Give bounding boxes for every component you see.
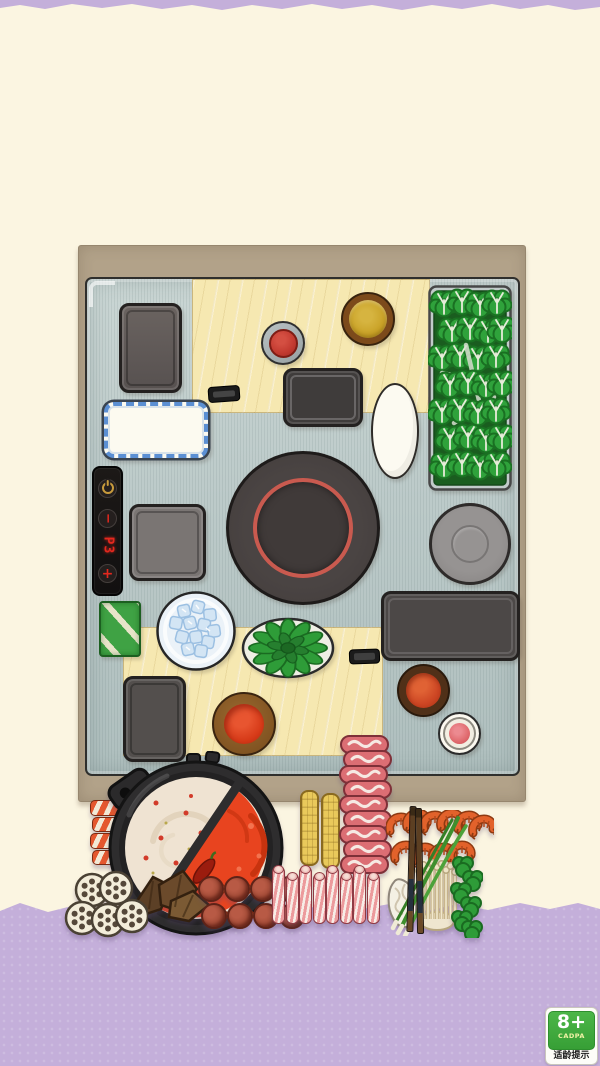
tray-top-center[interactable] bbox=[283, 368, 363, 427]
small-handle[interactable] bbox=[349, 648, 381, 664]
sliced-meat-rolls[interactable] bbox=[272, 866, 396, 932]
burner-control-panel: − P3 + bbox=[92, 466, 123, 596]
ice-plate[interactable] bbox=[155, 590, 237, 672]
power-level-display: P3 bbox=[100, 537, 115, 555]
age-rating-square: 8+ CADPA bbox=[548, 1011, 595, 1050]
age-rating-badge: 8+ CADPA 适龄提示 bbox=[545, 1007, 598, 1065]
large-dark-tray[interactable] bbox=[381, 591, 520, 661]
cilantro-plate[interactable] bbox=[240, 612, 336, 680]
broccoli[interactable] bbox=[447, 854, 483, 938]
burner-heat-ring bbox=[253, 478, 353, 578]
blue-rim-plate[interactable] bbox=[104, 402, 208, 458]
lotus-root-slices[interactable] bbox=[64, 870, 148, 942]
red-dip-bowl-center[interactable] bbox=[212, 692, 276, 756]
age-rating-org: CADPA bbox=[549, 1033, 594, 1040]
marbled-beef-stack[interactable] bbox=[337, 734, 393, 876]
age-rating-label: 适龄提示 bbox=[546, 1050, 597, 1063]
lettuce-box-graphic bbox=[428, 285, 512, 491]
mustard-sauce-bowl[interactable] bbox=[341, 292, 395, 346]
broccoli-graphic bbox=[447, 854, 483, 938]
plus-icon: + bbox=[102, 567, 114, 581]
red-sauce-cup[interactable] bbox=[261, 321, 305, 365]
whetstone[interactable] bbox=[207, 385, 240, 403]
lettuce-box[interactable] bbox=[428, 285, 512, 491]
wall-edge-strip bbox=[0, 0, 600, 12]
round-gray-plate[interactable] bbox=[429, 503, 511, 585]
wrapped-green-pack[interactable] bbox=[99, 601, 141, 657]
beef-stack-graphic bbox=[337, 734, 393, 876]
white-oval-plate[interactable] bbox=[371, 383, 419, 479]
red-dip-bowl-right[interactable] bbox=[397, 664, 450, 717]
power-decrease-button[interactable]: − bbox=[98, 509, 117, 528]
pink-dip-cup[interactable] bbox=[438, 712, 481, 755]
tray-top-left[interactable] bbox=[119, 303, 182, 393]
ice-plate-graphic bbox=[155, 590, 237, 672]
cilantro-plate-graphic bbox=[240, 612, 336, 680]
minus-icon: − bbox=[101, 513, 114, 524]
game-screen: − P3 + bbox=[0, 0, 600, 1066]
power-button[interactable] bbox=[98, 479, 117, 498]
induction-burner[interactable] bbox=[226, 451, 380, 605]
lotus-root-graphic bbox=[64, 870, 148, 942]
power-increase-button[interactable]: + bbox=[98, 564, 117, 583]
bottom-left-tray[interactable] bbox=[123, 676, 186, 762]
square-tray[interactable] bbox=[129, 504, 206, 581]
power-icon bbox=[102, 482, 114, 494]
age-rating-value: 8+ bbox=[549, 1012, 594, 1033]
corn-cobs[interactable] bbox=[300, 790, 340, 868]
